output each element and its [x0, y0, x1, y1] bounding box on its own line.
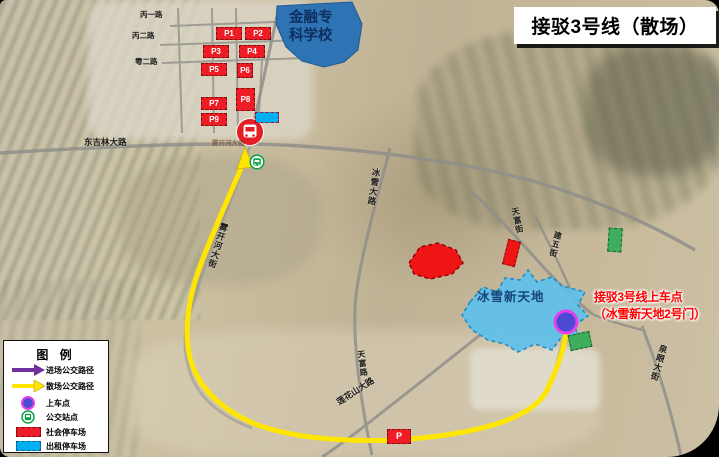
legend-item-boarding: 上车点: [10, 396, 70, 410]
legend-panel: 图 例 进场公交路径 散场公交路径 上车点: [3, 340, 109, 453]
road-label: 丙二路: [132, 30, 155, 41]
legend-item-taxi-parking: 出租停车场: [10, 439, 86, 453]
legend-item-inbound: 进场公交路径: [10, 363, 94, 377]
boarding-point-icon: [555, 311, 577, 333]
outbound-arrow-icon: [10, 380, 46, 392]
parking-lot-p5: P5: [201, 63, 227, 76]
red-area-polygon: [409, 243, 463, 279]
green-parking-box: [607, 228, 623, 253]
taxi-parking-box: [255, 112, 279, 123]
map-title: 接驳3号线（散场）: [514, 7, 716, 44]
parking-lot-p1: P1: [216, 27, 242, 40]
parking-lot-p7: P7: [201, 97, 227, 110]
boarding-point-note: 接驳3号线上车点 （冰雪新天地2号门）: [594, 289, 706, 323]
map-canvas: P1 P2 P3 P4 P5 P6 P7 P8 P9 P 丙一路 丙二路 雩二路…: [0, 0, 719, 457]
boarding-point-legend-icon: [21, 396, 35, 410]
inbound-arrow-icon: [10, 364, 46, 376]
screenshot-stage: P1 P2 P3 P4 P5 P6 P7 P8 P9 P 丙一路 丙二路 雩二路…: [0, 0, 719, 457]
legend-title: 图 例: [4, 346, 108, 363]
parking-lot-p3: P3: [203, 45, 229, 58]
legend-item-bus-stop: 公交站点: [10, 410, 78, 424]
taxi-parking-legend-icon: [16, 441, 41, 451]
legend-item-public-parking: 社会停车场: [10, 425, 86, 439]
parking-lot-p4: P4: [239, 45, 265, 58]
road-label: 丙一路: [140, 9, 163, 20]
finance-college-label: 金融专 科学校: [289, 9, 333, 45]
public-parking-legend-icon: [16, 427, 41, 437]
bus-stop-legend-icon: [10, 410, 46, 424]
parking-lot-p9: P9: [201, 113, 227, 126]
road-label: 雩二路: [135, 56, 158, 67]
parking-lot-p2: P2: [245, 27, 271, 40]
road-label: 东吉林大路: [84, 136, 127, 148]
parking-lot-roadside: P: [387, 429, 411, 444]
parking-lot-p8: P8: [236, 88, 255, 111]
parking-lot-p6: P6: [237, 63, 253, 78]
legend-item-outbound: 散场公交路径: [10, 379, 94, 393]
road-label: 雾开河大街: [212, 137, 245, 147]
bus-stop-icon: [250, 155, 264, 169]
ice-snow-world-label: 冰雪新天地: [477, 286, 545, 305]
